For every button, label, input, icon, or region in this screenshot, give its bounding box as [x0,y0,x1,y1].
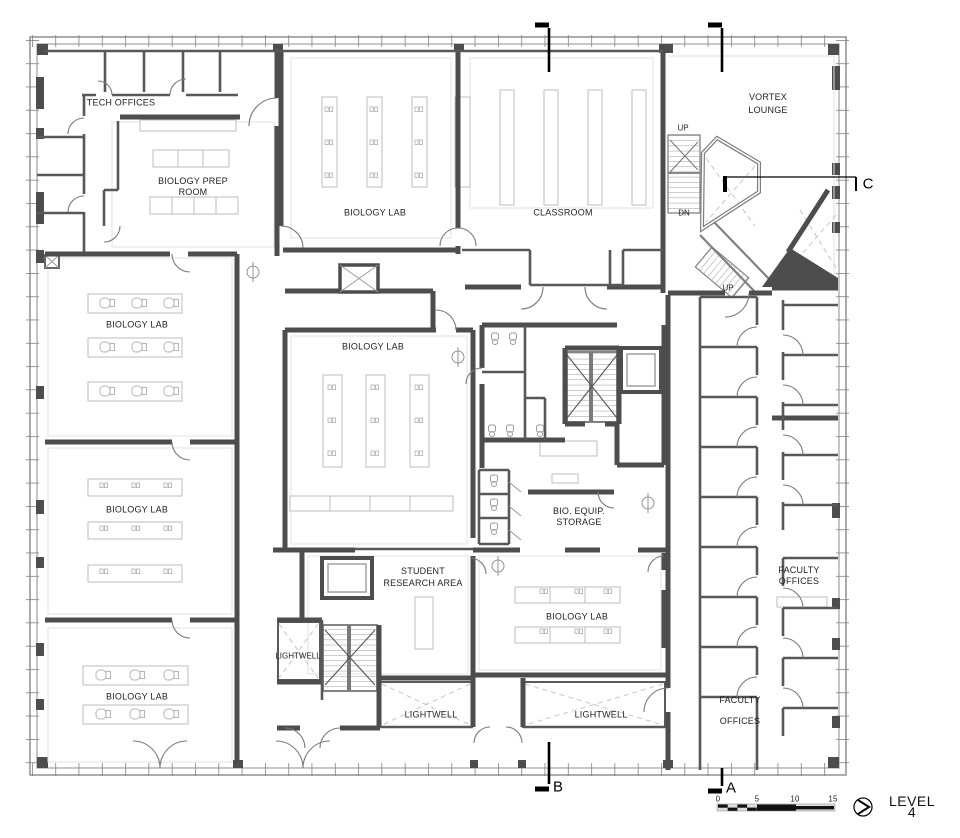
room-label-lightwell-small: LIGHTWELL [275,651,320,662]
room-label-faculty-offices-south: FACULTY OFFICES [719,690,760,732]
service-shafts [45,255,378,292]
room-label-tech-offices: TECH OFFICES [87,98,155,109]
stair-label-up-south: UP [722,283,733,294]
room-label-faculty-offices-east: FACULTY OFFICES [778,565,819,587]
stair-south [323,625,377,691]
floor-plan-drawing [0,0,960,838]
building-facade [26,35,849,776]
north-arrow-icon [854,798,872,816]
room-label-classroom: CLASSROOM [533,208,592,219]
room-label-vortex-lounge: VORTEX LOUNGE [748,91,787,117]
stair-core-scissor [567,352,617,422]
room-label-bio-equip-storage: BIO. EQUIP. STORAGE [553,506,605,528]
section-marker-a: A [726,783,736,794]
room-label-biology-lab-bottom: BIOLOGY LAB [546,612,608,623]
room-label-biology-lab-left-lower: BIOLOGY LAB [106,692,168,703]
restroom-fixtures [489,333,544,540]
vortex-stair-sculpture [695,138,838,298]
room-label-biology-lab-top: BIOLOGY LAB [344,208,406,219]
room-label-lightwell-east: LIGHTWELL [575,710,628,721]
room-label-biology-lab-left-middle: BIOLOGY LAB [106,505,168,516]
room-label-student-research-area: STUDENT RESEARCH AREA [383,565,462,589]
room-label-biology-prep-room: BIOLOGY PREP ROOM [158,176,228,198]
room-label-lightwell-center: LIGHTWELL [405,710,458,721]
scale-bar [717,804,835,811]
room-label-biology-lab-left-upper: BIOLOGY LAB [106,320,168,331]
stair-north [668,135,700,213]
scale-tick-5: 5 [755,794,760,805]
stair-label-dn-north: DN [678,208,690,219]
level-title: LEVEL 4 [888,796,936,818]
room-label-biology-lab-center: BIOLOGY LAB [342,342,404,353]
scale-tick-15: 15 [828,794,837,805]
floor-plan: TECH OFFICES BIOLOGY PREP ROOM BIOLOGY L… [0,0,960,838]
scale-tick-0: 0 [716,794,721,805]
section-marker-b: B [553,782,563,793]
scale-tick-10: 10 [790,794,799,805]
stair-label-up-north: UP [677,123,688,134]
section-marker-c: C [863,179,874,190]
